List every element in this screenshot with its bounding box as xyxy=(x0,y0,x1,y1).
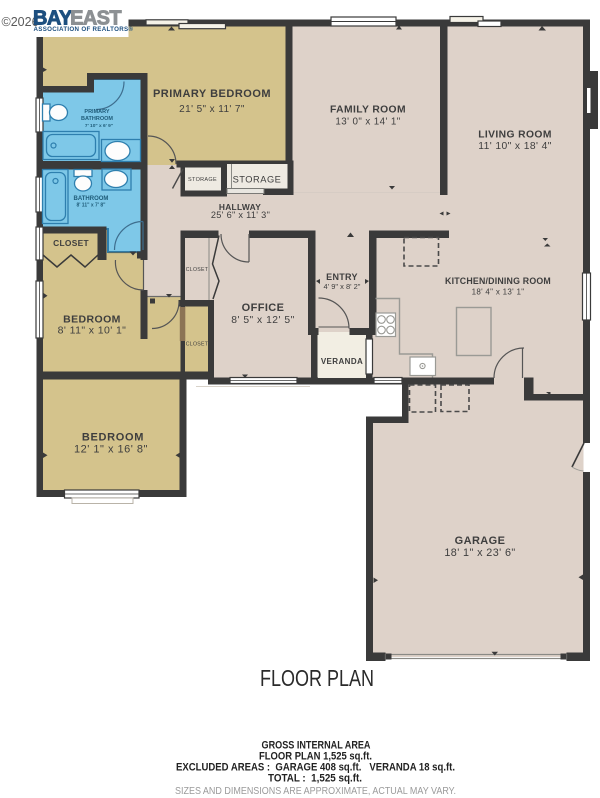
svg-text:STORAGE: STORAGE xyxy=(233,175,282,185)
svg-text:11' 10" x 18' 4": 11' 10" x 18' 4" xyxy=(478,141,552,152)
svg-text:ASSOCIATION OF REALTORS®: ASSOCIATION OF REALTORS® xyxy=(34,26,134,33)
svg-text:4' 9" x 8' 2": 4' 9" x 8' 2" xyxy=(324,282,361,291)
svg-text:ENTRY: ENTRY xyxy=(326,272,358,282)
svg-text:PRIMARY BEDROOM: PRIMARY BEDROOM xyxy=(153,88,271,100)
svg-text:BATHROOM: BATHROOM xyxy=(81,116,113,122)
svg-text:8' 5" x 12' 5": 8' 5" x 12' 5" xyxy=(231,315,294,326)
svg-text:LIVING ROOM: LIVING ROOM xyxy=(478,130,552,141)
svg-text:BATHROOM: BATHROOM xyxy=(74,196,109,202)
svg-text:FAMILY ROOM: FAMILY ROOM xyxy=(330,105,406,116)
svg-text:FLOOR PLAN: FLOOR PLAN xyxy=(260,665,374,691)
svg-text:18' 4" x 13' 1": 18' 4" x 13' 1" xyxy=(472,288,525,297)
svg-text:GARAGE: GARAGE xyxy=(455,535,506,547)
svg-text:13' 0" x 14' 1": 13' 0" x 14' 1" xyxy=(335,117,400,128)
svg-text:SIZES AND DIMENSIONS ARE APPRO: SIZES AND DIMENSIONS ARE APPROXIMATE, AC… xyxy=(175,785,456,797)
svg-text:18' 1" x 23' 6": 18' 1" x 23' 6" xyxy=(444,547,515,559)
svg-text:CLOSET: CLOSET xyxy=(53,238,89,248)
svg-text:TOTAL : 1,525 sq.ft.: TOTAL : 1,525 sq.ft. xyxy=(268,773,362,785)
svg-text:21' 5" x 11' 7": 21' 5" x 11' 7" xyxy=(179,104,245,115)
svg-text:8' 11" x 10' 1": 8' 11" x 10' 1" xyxy=(58,325,127,337)
svg-text:STORAGE: STORAGE xyxy=(188,177,217,183)
svg-text:BEDROOM: BEDROOM xyxy=(82,432,144,444)
svg-text:7' 10" x 6' 9": 7' 10" x 6' 9" xyxy=(85,123,113,129)
svg-text:8' 11" x 7' 8": 8' 11" x 7' 8" xyxy=(76,203,106,209)
svg-text:KITCHEN/DINING ROOM: KITCHEN/DINING ROOM xyxy=(445,276,551,286)
svg-text:CLOSET: CLOSET xyxy=(186,342,209,348)
svg-text:25' 6" x 11' 3": 25' 6" x 11' 3" xyxy=(211,210,270,220)
svg-text:PRIMARY: PRIMARY xyxy=(84,109,109,115)
svg-text:CLOSET: CLOSET xyxy=(186,267,209,273)
svg-text:OFFICE: OFFICE xyxy=(242,302,285,314)
svg-text:12' 1" x 16' 8": 12' 1" x 16' 8" xyxy=(74,444,148,456)
svg-text:VERANDA: VERANDA xyxy=(321,357,363,366)
